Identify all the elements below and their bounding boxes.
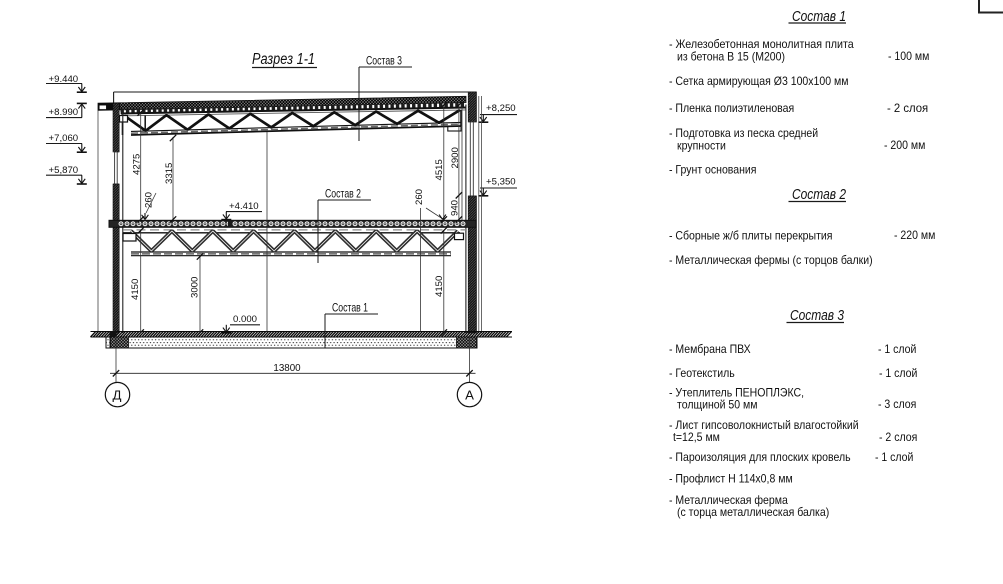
- svg-text:4275: 4275: [132, 154, 143, 175]
- svg-text:+4.410: +4.410: [229, 201, 259, 212]
- svg-text:- Грунт основания: - Грунт основания: [669, 164, 757, 177]
- svg-text:+8,250: +8,250: [486, 103, 516, 114]
- svg-text:- 1 слой: - 1 слой: [878, 343, 916, 356]
- svg-text:- Пленка полиэтиленовая: - Пленка полиэтиленовая: [669, 102, 794, 115]
- svg-text:3000: 3000: [190, 277, 201, 298]
- svg-text:А: А: [465, 387, 474, 402]
- svg-text:Состав 3: Состав 3: [366, 55, 402, 68]
- svg-text:- 220 мм: - 220 мм: [894, 229, 935, 242]
- svg-text:4150: 4150: [434, 276, 445, 297]
- svg-text:2900: 2900: [450, 147, 461, 168]
- svg-text:- 200 мм: - 200 мм: [884, 139, 925, 152]
- svg-text:- 3 слоя: - 3 слоя: [878, 398, 916, 411]
- svg-text:- 2 слоя: - 2 слоя: [887, 102, 928, 115]
- svg-text:- Пароизоляция для плоских кро: - Пароизоляция для плоских кровель: [669, 451, 851, 464]
- svg-text:0.000: 0.000: [233, 314, 257, 325]
- svg-text:Состав 2: Состав 2: [792, 186, 847, 203]
- svg-text:4150: 4150: [130, 279, 141, 300]
- svg-text:- Сетка армирующая Ø3 100х100: - Сетка армирующая Ø3 100х100 мм: [669, 75, 849, 88]
- svg-text:- Подготовка из песка средней: - Подготовка из песка средней: [669, 127, 818, 140]
- svg-text:Состав 2: Состав 2: [325, 188, 361, 201]
- svg-text:3315: 3315: [164, 163, 175, 184]
- svg-text:Д: Д: [113, 387, 122, 402]
- svg-text:- 2 слоя: - 2 слоя: [879, 431, 917, 444]
- svg-text:- Мембрана ПВХ: - Мембрана ПВХ: [669, 343, 751, 356]
- svg-text:+5,350: +5,350: [486, 176, 516, 187]
- svg-text:- Металлическая фермы (с торцо: - Металлическая фермы (с торцов балки): [669, 254, 873, 267]
- svg-text:из бетона В 15 (М200): из бетона В 15 (М200): [677, 51, 785, 64]
- svg-text:13800: 13800: [273, 363, 301, 374]
- svg-text:- Геотекстиль: - Геотекстиль: [669, 367, 735, 380]
- svg-text:Разрез 1-1: Разрез 1-1: [252, 51, 315, 68]
- svg-text:- Сборные ж/б плиты перекрытия: - Сборные ж/б плиты перекрытия: [669, 230, 833, 243]
- svg-text:+8.990: +8.990: [49, 107, 79, 118]
- svg-text:- 1 слой: - 1 слой: [879, 367, 917, 380]
- svg-text:+5,870: +5,870: [49, 165, 79, 176]
- svg-text:4515: 4515: [434, 159, 445, 180]
- svg-text:260: 260: [414, 189, 425, 205]
- svg-text:- Железобетонная монолитная п: - Железобетонная монолитная плита: [669, 38, 854, 51]
- svg-text:(с торца металлическая балка): (с торца металлическая балка): [677, 506, 829, 519]
- svg-text:- 100 мм: - 100 мм: [888, 50, 929, 63]
- svg-text:t=12,5 мм: t=12,5 мм: [673, 431, 720, 444]
- svg-text:крупности: крупности: [677, 140, 726, 153]
- svg-text:Состав 1: Состав 1: [332, 302, 368, 315]
- svg-text:- 1 слой: - 1 слой: [875, 451, 913, 464]
- svg-text:толщиной 50 мм: толщиной 50 мм: [677, 399, 758, 412]
- svg-text:940: 940: [450, 200, 461, 216]
- svg-text:Состав 3: Состав 3: [790, 307, 845, 324]
- svg-text:- Профлист Н 114х0,8 мм: - Профлист Н 114х0,8 мм: [669, 473, 793, 486]
- svg-text:+7,060: +7,060: [49, 133, 79, 144]
